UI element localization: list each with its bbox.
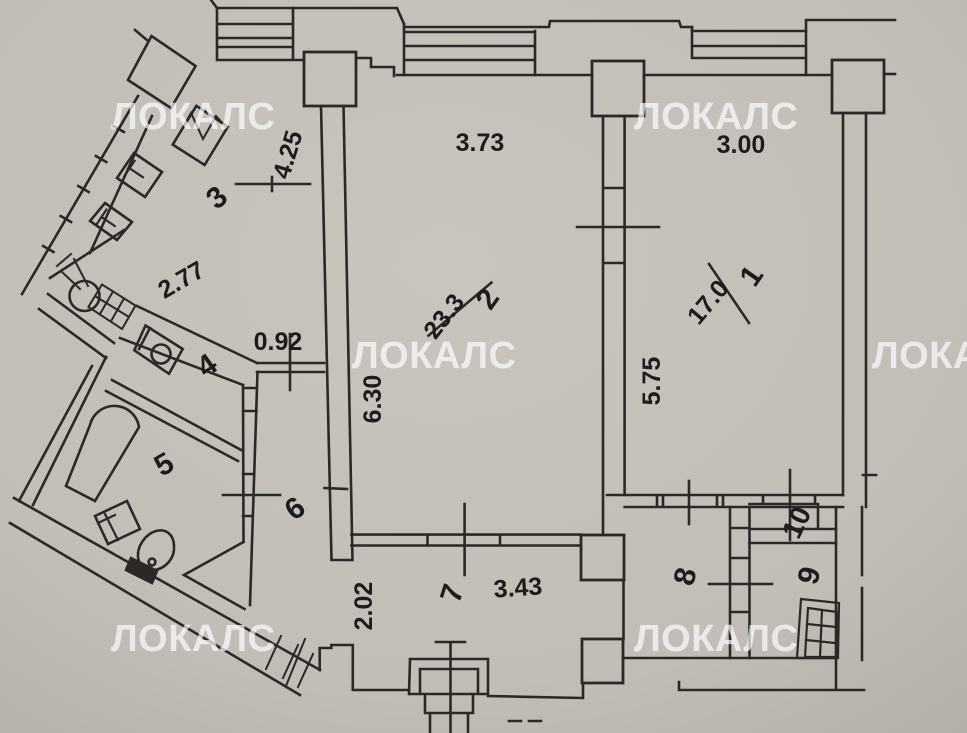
svg-text:2: 2 <box>469 283 506 316</box>
svg-text:7: 7 <box>434 581 471 607</box>
svg-text:3.73: 3.73 <box>456 129 505 157</box>
svg-text:2.77: 2.77 <box>153 256 209 305</box>
svg-text:5: 5 <box>149 446 180 483</box>
svg-text:9: 9 <box>791 563 827 588</box>
svg-text:3.43: 3.43 <box>493 572 544 603</box>
svg-text:6.30: 6.30 <box>359 375 387 424</box>
svg-text:17.0: 17.0 <box>682 275 735 330</box>
svg-text:1: 1 <box>733 260 770 293</box>
svg-text:4: 4 <box>191 347 224 384</box>
svg-text:10: 10 <box>776 502 817 543</box>
svg-text:0.92: 0.92 <box>254 328 303 356</box>
svg-text:8: 8 <box>667 564 703 589</box>
svg-text:2.02: 2.02 <box>350 582 378 631</box>
svg-text:6: 6 <box>279 490 312 527</box>
svg-text:5.75: 5.75 <box>638 357 666 406</box>
svg-text:3: 3 <box>200 180 234 216</box>
